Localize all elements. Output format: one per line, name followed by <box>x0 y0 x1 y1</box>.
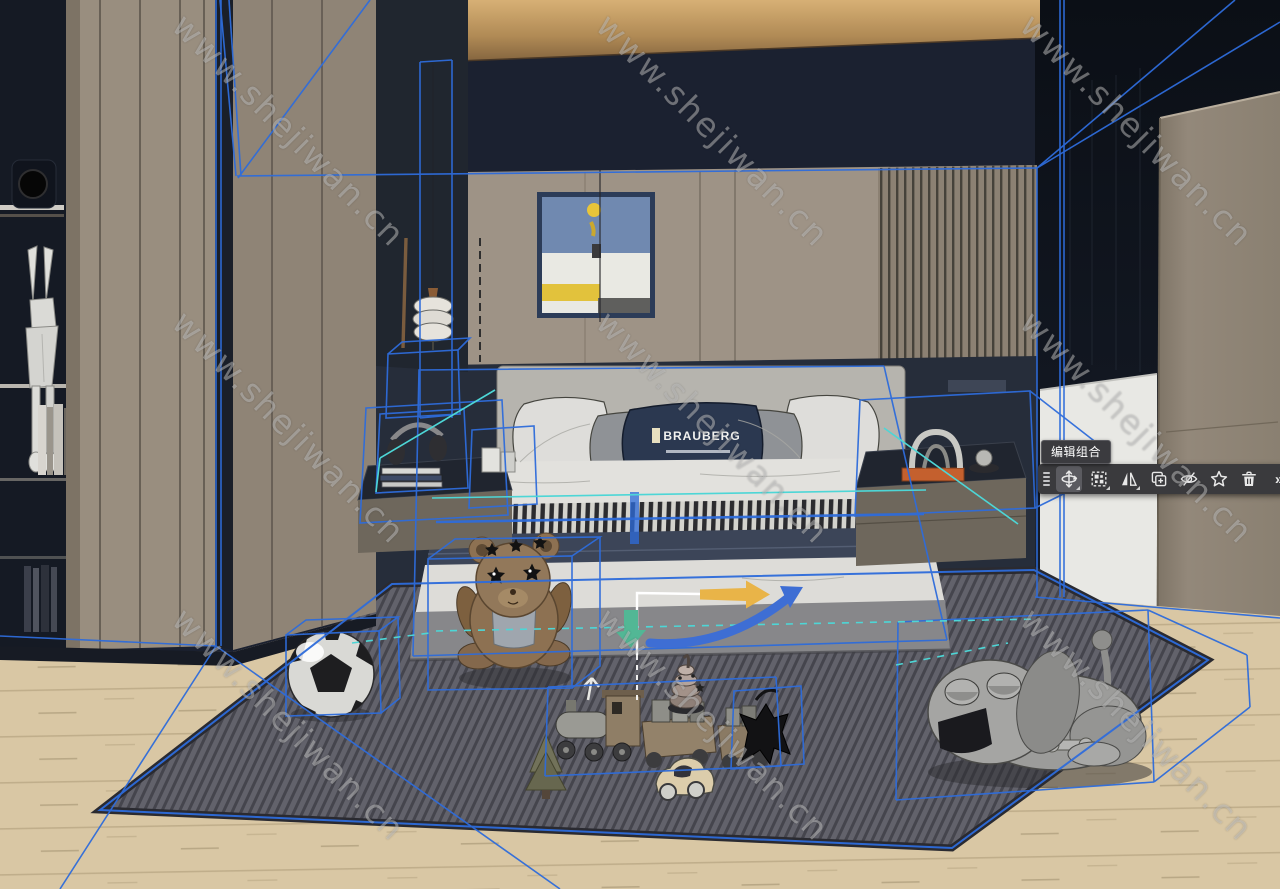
more-chevron-icon: » <box>1275 472 1280 487</box>
toolbar-button-select[interactable] <box>1086 466 1112 492</box>
hide-eye-slash-icon <box>1179 469 1199 489</box>
nightstand-right[interactable] <box>856 432 1026 566</box>
wall-niche-light <box>948 380 1006 392</box>
toolbar-button-move[interactable] <box>1056 466 1082 492</box>
toolbar-button-more[interactable]: » <box>1266 466 1280 492</box>
pillow-brand-text: BRAUBERG <box>663 429 740 443</box>
slat-panel[interactable] <box>878 165 1037 366</box>
acrylic-cube-model[interactable] <box>482 448 500 472</box>
toolbar-button-hide[interactable] <box>1176 466 1202 492</box>
toolbar-button-copy[interactable] <box>1146 466 1172 492</box>
context-toolbar: » <box>1038 464 1280 494</box>
speaker-model[interactable] <box>12 160 56 208</box>
favorite-star-icon <box>1209 469 1229 489</box>
toolbar-button-flip[interactable] <box>1116 466 1142 492</box>
wardrobe-edge-shade <box>66 0 80 650</box>
design-viewport[interactable]: BRAUBERG <box>0 0 1280 889</box>
wardrobe[interactable] <box>0 0 376 666</box>
copy-icon <box>1149 469 1169 489</box>
toolbar-tooltip: 编辑组合 <box>1041 440 1111 464</box>
side-wall[interactable] <box>233 0 376 650</box>
delete-trash-icon <box>1239 469 1259 489</box>
toolbar-button-favorite[interactable] <box>1206 466 1232 492</box>
wall-art[interactable] <box>537 170 655 322</box>
toolbar-button-delete[interactable] <box>1236 466 1262 492</box>
corner-gap <box>215 0 233 650</box>
drag-handle-icon[interactable] <box>1043 472 1050 486</box>
